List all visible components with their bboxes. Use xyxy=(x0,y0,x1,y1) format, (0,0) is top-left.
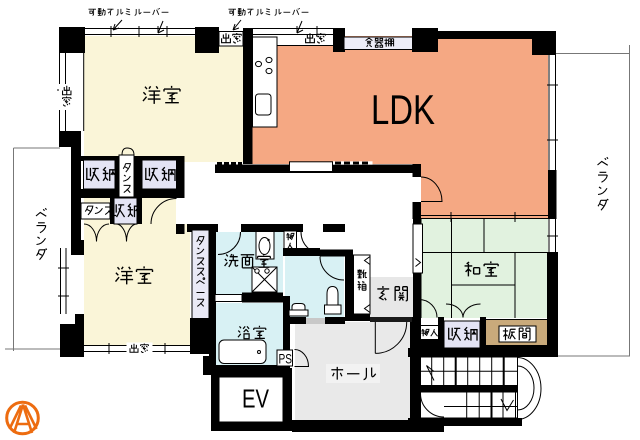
svg-text:EV: EV xyxy=(242,384,270,414)
svg-text:LDK: LDK xyxy=(371,86,435,133)
svg-text:PS: PS xyxy=(279,351,293,367)
